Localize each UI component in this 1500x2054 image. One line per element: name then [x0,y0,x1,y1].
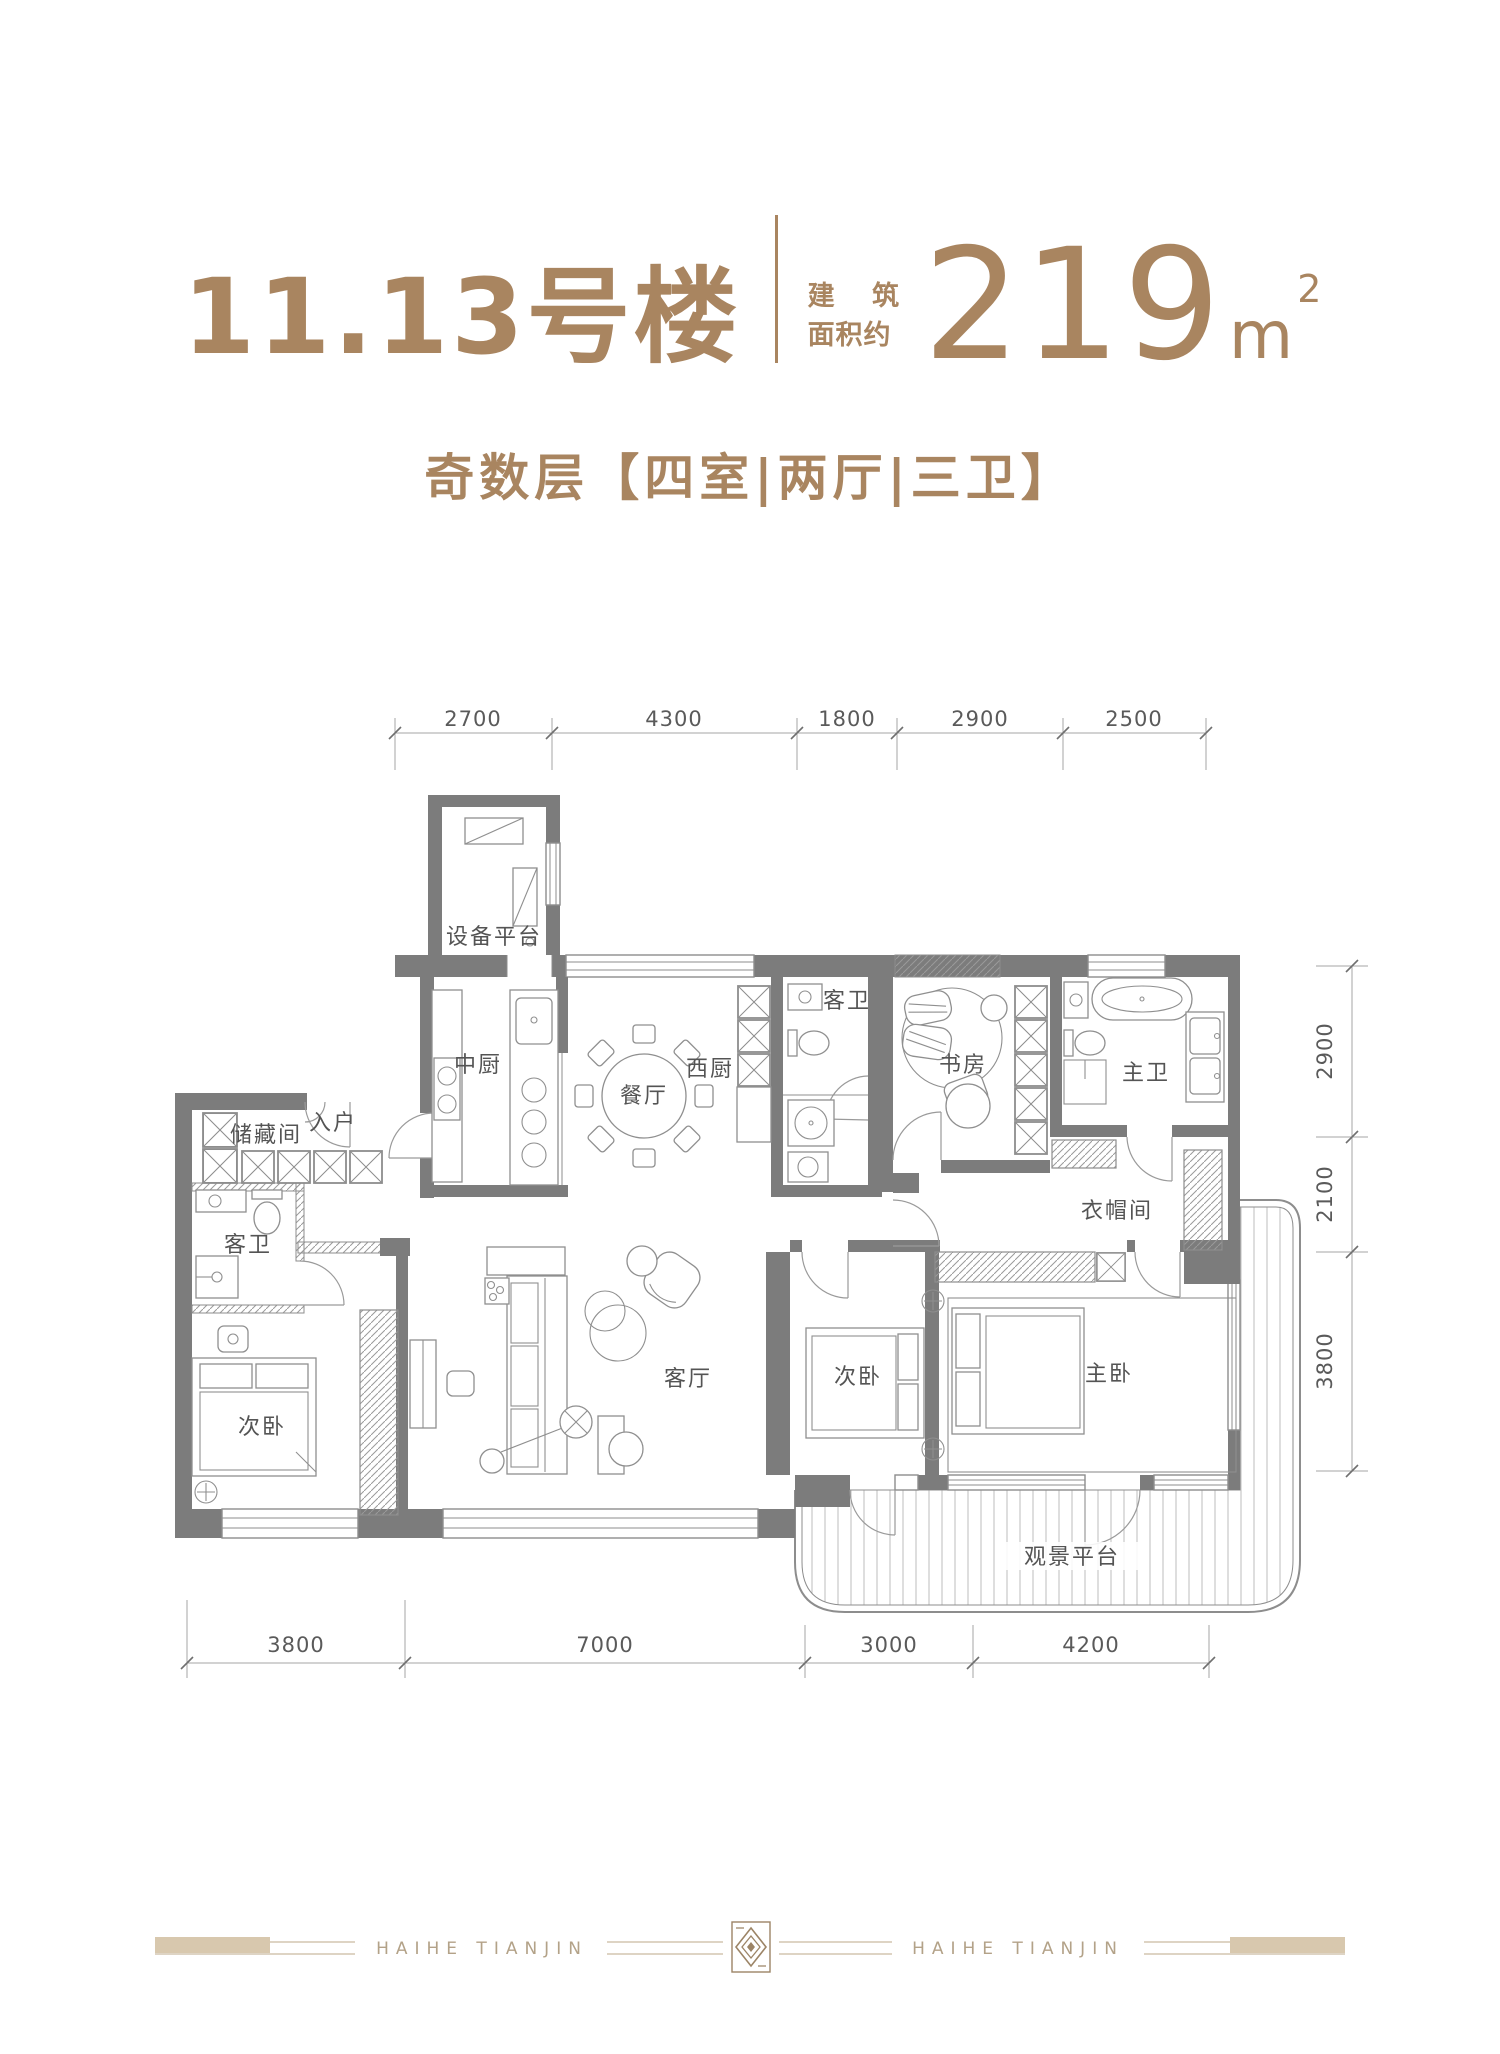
dim-right-1: 2900 [1313,1022,1337,1079]
dim-bottom-2: 7000 [576,1633,633,1657]
footer: HAIHE TIANJIN HAIHE TIANJIN [155,1920,1345,1972]
dim-bottom-1: 3800 [267,1633,324,1657]
room-label-living: 客厅 [664,1367,712,1392]
room-label-kitchen-west: 西厨 [686,1057,734,1082]
room-label-view-deck: 观景平台 [1024,1545,1120,1570]
page: 11.13号楼 建 筑 面积约 219 m 2 奇数层【四室|两厅|三卫】 [0,0,1500,2054]
dim-right-2: 2100 [1313,1165,1337,1222]
footer-beige-right [1230,1937,1345,1953]
room-label-cloakroom: 衣帽间 [1081,1199,1153,1224]
dim-bottom-3: 3000 [860,1633,917,1657]
dim-bottom-4: 4200 [1062,1633,1119,1657]
room-label-guest-bath-left: 客卫 [224,1233,272,1258]
dim-top-5: 2500 [1105,707,1162,731]
dim-top-1: 2700 [444,707,501,731]
room-label-equipment: 设备平台 [446,925,542,950]
room-label-master-bedroom: 主卧 [1085,1362,1133,1387]
dim-top-2: 4300 [645,707,702,731]
dimension-right: 2900 2100 3800 [1313,960,1368,1477]
dim-right-3: 3800 [1313,1332,1337,1389]
footer-ornament-icon [732,1922,770,1972]
footer-brand-left: HAIHE TIANJIN [376,1939,588,1959]
room-label-bedroom-mid: 次卧 [834,1365,882,1390]
room-label-kitchen-cn: 中厨 [454,1053,502,1078]
footer-brand-right: HAIHE TIANJIN [912,1939,1124,1959]
floor-plan: 2700 4300 1800 2900 2500 2900 2100 3800 [0,0,1500,2054]
room-label-guest-bath-top: 客卫 [823,989,871,1014]
footer-beige-left [155,1937,270,1953]
room-label-storage: 储藏间 [230,1123,302,1148]
room-label-bedroom-left: 次卧 [238,1415,286,1440]
room-label-dining: 餐厅 [620,1084,668,1109]
dimension-top: 2700 4300 1800 2900 2500 [389,707,1212,770]
dim-top-4: 2900 [951,707,1008,731]
room-label-master-bath: 主卫 [1122,1061,1170,1086]
room-label-entry: 入户 [309,1111,357,1136]
dim-top-3: 1800 [818,707,875,731]
room-label-study: 书房 [939,1053,987,1078]
